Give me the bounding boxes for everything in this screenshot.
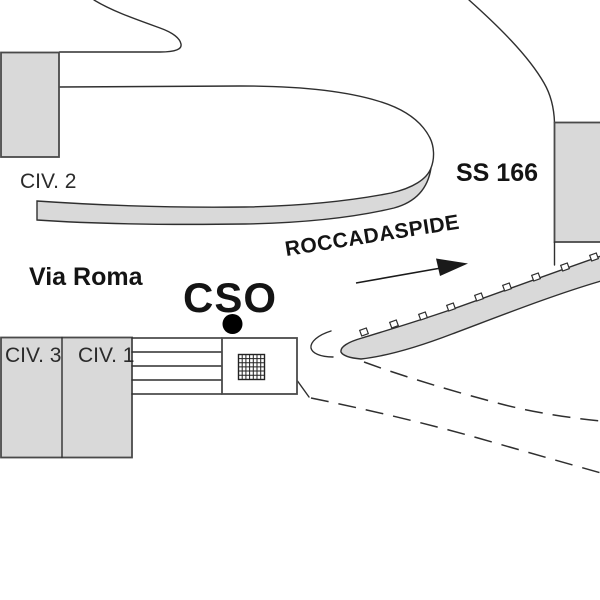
label-cso: CSO — [183, 275, 277, 321]
site-map-canvas — [0, 0, 600, 600]
label-civ3: CIV. 3 — [5, 344, 61, 367]
dashed-road-edge-upper — [364, 362, 600, 421]
label-ss166: SS 166 — [456, 160, 538, 188]
hatched-grid-square-icon — [239, 355, 265, 380]
arrow-shaft — [356, 268, 441, 283]
roadside-parcel — [555, 123, 600, 243]
label-civ1: CIV. 1 — [78, 344, 134, 367]
ss166-outer-curve-edge — [469, 0, 555, 123]
building-corner-edge — [298, 381, 310, 397]
site-map: CIV. 2 Via Roma CSO SS 166 ROCCADASPIDE … — [0, 0, 600, 600]
traffic-island-top-edge — [59, 86, 434, 168]
road-edge-north-hook — [60, 0, 182, 52]
dashed-road-edge-lower — [311, 398, 600, 473]
guardrail-curb-band — [341, 256, 600, 359]
label-via-roma: Via Roma — [29, 264, 142, 292]
arrow-head — [436, 259, 468, 277]
traffic-island-curb — [37, 168, 431, 224]
civ2-building — [1, 53, 59, 158]
lane-marking-lines — [132, 338, 222, 394]
curb-return-arc — [311, 331, 333, 357]
guardrail-post-icon — [360, 328, 369, 336]
direction-arrow-icon — [356, 259, 468, 284]
label-civ2: CIV. 2 — [20, 170, 76, 193]
